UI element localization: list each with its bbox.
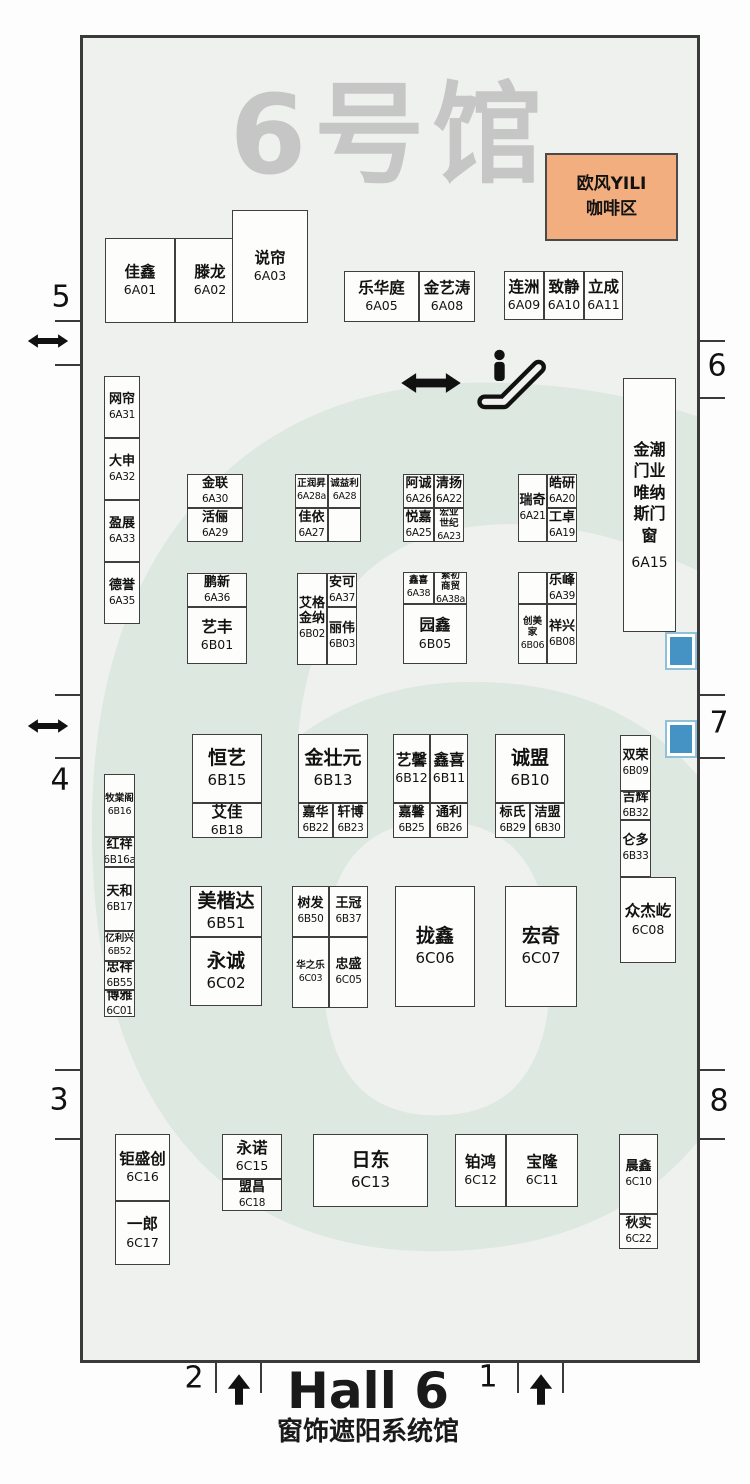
booth-id: 6B11: [433, 770, 465, 785]
booth-name: 活俪: [202, 511, 228, 526]
booth-name: 繁初 商贸: [441, 572, 460, 593]
booth-6B17: 天和6B17: [104, 867, 135, 931]
wall-tick: [562, 1363, 564, 1393]
booth-id: 6B55: [106, 977, 132, 990]
booth-name: 亿利兴: [105, 934, 134, 945]
booth-id: 6B16a: [104, 854, 135, 867]
wall-tick: [700, 757, 725, 759]
wall-tick: [517, 1363, 519, 1393]
booth-6B33: 仑多6B33: [620, 820, 651, 877]
booth-name: 众杰屹: [625, 903, 672, 921]
booth-id: 6A33: [109, 533, 135, 546]
booth-name: 天和: [106, 885, 132, 900]
booth-6A09: 连洲6A09: [504, 271, 544, 320]
wall-tick: [700, 340, 725, 342]
booth-name: 红祥: [106, 838, 132, 853]
booth-id: 6A39: [549, 590, 575, 603]
booth-id: 6C06: [415, 949, 454, 967]
booth-id: 6A30: [202, 493, 228, 506]
booth-id: 6A10: [548, 297, 580, 312]
booth-id: 6A02: [194, 282, 226, 297]
booth-6C10: 晨鑫6C10: [619, 1134, 658, 1214]
wall-tick: [55, 364, 80, 366]
booth-id: 6B13: [314, 771, 353, 789]
booth-id: 6B01: [201, 637, 233, 652]
booth-6C15: 永诺6C15: [222, 1134, 282, 1179]
booth-name: 滕龙: [194, 264, 225, 282]
booth-id: 6B05: [419, 636, 451, 651]
entrance-up-arrow-icon: [227, 1371, 251, 1408]
wall-number-7: 7: [709, 706, 728, 741]
booth-6A37: 安可6A37: [327, 573, 357, 607]
wall-tick: [55, 757, 80, 759]
booth-id: 6B22: [302, 822, 328, 835]
booth-name: 安可: [329, 576, 355, 591]
booth-6C05: 忠盛6C05: [329, 937, 368, 1008]
booth-6B16: 牧棠阁6B16: [104, 774, 135, 837]
booth-id: 6A03: [254, 268, 286, 283]
booth-6C03: 华之乐6C03: [292, 937, 329, 1008]
booth-id: 6B50: [297, 913, 323, 926]
booth-id: 6A25: [405, 527, 431, 540]
booth-name: 日东: [351, 1150, 389, 1172]
wall-tick: [215, 1363, 217, 1393]
booth-id: 6C17: [126, 1235, 159, 1250]
footer-hall-subtitle: 窗饰遮阳系统馆: [277, 1419, 459, 1445]
booth-6A32: 大申6A32: [104, 438, 140, 500]
booth-6A26: 阿诚6A26: [403, 474, 434, 508]
booth-id: 6C15: [236, 1158, 269, 1173]
booth-id: 6C02: [206, 974, 245, 992]
booth-id: 6B37: [335, 913, 361, 926]
booth-name: 金艺涛: [424, 280, 471, 298]
wall-tick: [55, 320, 80, 322]
booth-id: 6C07: [521, 949, 560, 967]
wall-tick: [260, 1363, 262, 1393]
booth-6B18: 艾佳6B18: [192, 803, 262, 838]
booth-id: 6B10: [511, 771, 550, 789]
booth-id: 6A11: [587, 297, 619, 312]
booth-6A38a: 繁初 商贸6A38a: [434, 572, 467, 604]
entrance-up-arrow-icon: [529, 1371, 553, 1408]
booth-name: 忠盛: [335, 958, 361, 973]
booth-name: 秋实: [625, 1217, 651, 1232]
booth-id: 6A38a: [436, 594, 465, 604]
booth-id: 6A29: [202, 527, 228, 540]
coffee-area-line2: 咖啡区: [586, 197, 637, 222]
booth-name: 祥兴: [549, 620, 575, 635]
booth-name: 鑫喜: [409, 576, 428, 587]
booth-6B06: 创美家6B06: [518, 604, 547, 664]
booth-name: 艾佳: [211, 804, 242, 822]
booth-6A30: 金联6A30: [187, 474, 243, 508]
booth-6A08: 金艺涛6A08: [419, 271, 475, 322]
wall-number-2: 2: [184, 1361, 203, 1396]
booth-id: 6B52: [108, 946, 131, 957]
wall-tick: [700, 1069, 725, 1071]
booth-id: 6A27: [298, 527, 324, 540]
booth-id: 6B06: [521, 640, 544, 651]
booth-id: 6C05: [335, 974, 361, 987]
booth-id: 6A36: [204, 592, 230, 605]
booth-6A33: 盈展6A33: [104, 500, 140, 562]
booth-name: 清扬: [436, 477, 462, 492]
booth-id: 6A05: [365, 298, 397, 313]
booth-6C01: 博雅6C01: [104, 990, 135, 1017]
booth-6C02: 永诚6C02: [190, 937, 262, 1006]
booth-id: 6A09: [508, 297, 540, 312]
booth-id: 6C16: [126, 1169, 159, 1184]
booth-6A10: 致静6A10: [544, 271, 584, 320]
booth-name: 宏奇: [522, 926, 560, 948]
booth-6B15: 恒艺6B15: [192, 734, 262, 803]
booth-id: 6C13: [351, 1173, 390, 1191]
booth-6B13: 金壮元6B13: [298, 734, 368, 803]
booth-name: 正润昇: [297, 479, 326, 490]
booth-id: 6C18: [239, 1197, 265, 1210]
booth-name: 连洲: [508, 279, 539, 297]
booth-6B22: 嘉华6B22: [298, 803, 333, 838]
booth-name: 阿诚: [405, 477, 431, 492]
wall-tick: [55, 694, 80, 696]
wall-tick: [700, 694, 725, 696]
booth-name: 乐峰: [549, 574, 575, 589]
booth-name: 永诚: [207, 951, 245, 973]
booth-name: 标氏: [499, 806, 525, 821]
booth-name: 园鑫: [419, 617, 450, 635]
booth-empty: [328, 508, 361, 542]
wall-number-6: 6: [707, 349, 726, 384]
booth-6C22: 秋实6C22: [619, 1214, 658, 1249]
coffee-area: 欧风YILI 咖啡区: [545, 153, 678, 241]
booth-id: 6C01: [106, 1005, 132, 1017]
booth-id: 6B26: [436, 822, 462, 835]
booth-6C12: 铂鸿6C12: [455, 1134, 506, 1207]
booth-id: 6C11: [526, 1172, 559, 1187]
booth-6A05: 乐华庭6A05: [344, 271, 419, 322]
booth-id: 6B15: [208, 771, 247, 789]
booth-6A19: 工卓6A19: [547, 508, 577, 542]
booth-name: 鑫喜: [433, 752, 464, 770]
booth-name: 嘉华: [302, 806, 328, 821]
booth-name: 金潮 门业 唯纳 斯门 窗: [633, 439, 665, 547]
booth-id: 6C03: [299, 973, 323, 984]
booth-6B09: 双荣6B09: [620, 735, 651, 791]
booth-6B11: 鑫喜6B11: [430, 734, 468, 803]
booth-id: 6B30: [534, 822, 560, 835]
booth-6C08: 众杰屹6C08: [620, 877, 676, 963]
booth-6B26: 通利6B26: [430, 803, 468, 838]
booth-name: 创美家: [519, 617, 546, 639]
booth-6A25: 悦嘉6A25: [403, 508, 434, 542]
booth-name: 双荣: [622, 749, 648, 764]
booth-name: 宏业 世纪: [439, 508, 458, 530]
booth-name: 立成: [588, 279, 619, 297]
booth-name: 说帘: [254, 250, 285, 268]
passage-double-arrow-icon: [400, 368, 462, 398]
booth-id: 6A08: [431, 298, 463, 313]
booth-id: 6B12: [395, 770, 427, 785]
booth-id: 6A21: [519, 510, 545, 523]
booth-6A38: 鑫喜6A38: [403, 572, 434, 604]
wall-tick: [55, 1138, 80, 1140]
booth-6C06: 拢鑫6C06: [395, 886, 475, 1007]
booth-id: 6B51: [207, 914, 246, 932]
booth-6B01: 艺丰6B01: [187, 607, 247, 664]
booth-6B32: 吉辉6B32: [620, 791, 651, 820]
booth-name: 佳鑫: [124, 264, 155, 282]
booth-name: 金联: [202, 477, 228, 492]
wall-tick: [700, 397, 725, 399]
wall-number-4: 4: [50, 763, 69, 798]
booth-id: 6B32: [622, 807, 648, 820]
booth-name: 博雅: [106, 990, 132, 1004]
wall-tick: [700, 1138, 725, 1140]
booth-empty: [518, 572, 547, 604]
booth-id: 6B17: [106, 901, 132, 914]
booth-6A35: 德誉6A35: [104, 562, 140, 624]
booth-name: 丽伟: [329, 622, 355, 637]
booth-id: 6C10: [625, 1176, 651, 1189]
booth-6A22: 清扬6A22: [434, 474, 464, 508]
booth-6A03: 说帘6A03: [232, 210, 308, 323]
booth-id: 6C12: [464, 1172, 497, 1187]
booth-6B08: 祥兴6B08: [547, 604, 577, 664]
booth-6A27: 佳依6A27: [295, 508, 328, 542]
booth-id: 6A23: [437, 531, 460, 542]
booth-6C11: 宝隆6C11: [506, 1134, 578, 1207]
booth-name: 德誉: [109, 579, 135, 594]
booth-6A21: 瑞奇6A21: [518, 474, 547, 542]
booth-id: 6C22: [625, 1233, 651, 1246]
booth-name: 大申: [109, 455, 135, 470]
booth-id: 6A32: [109, 471, 135, 484]
booth-id: 6B09: [622, 765, 648, 778]
booth-name: 铂鸿: [465, 1154, 496, 1172]
booth-6B10: 诚盟6B10: [495, 734, 565, 803]
booth-6B52: 亿利兴6B52: [104, 931, 135, 961]
booth-name: 艺丰: [201, 619, 232, 637]
booth-6B12: 艺馨6B12: [393, 734, 430, 803]
blue-marker: [665, 632, 697, 670]
booth-6A15: 金潮 门业 唯纳 斯门 窗6A15: [623, 378, 676, 632]
booth-6B55: 忠祥6B55: [104, 961, 135, 990]
booth-6A23: 宏业 世纪6A23: [434, 508, 464, 542]
booth-name: 致静: [548, 279, 579, 297]
booth-6B29: 标氏6B29: [495, 803, 530, 838]
booth-name: 轩博: [337, 806, 363, 821]
passage-double-arrow-icon: [27, 712, 69, 740]
blue-marker: [665, 720, 697, 758]
booth-name: 诚盟: [511, 748, 549, 770]
wall-number-3: 3: [49, 1083, 68, 1118]
booth-id: 6A28a: [297, 491, 326, 502]
booth-name: 乐华庭: [358, 280, 405, 298]
booth-6B37: 王冠6B37: [329, 886, 368, 937]
booth-6B25: 嘉馨6B25: [393, 803, 430, 838]
coffee-area-line1: 欧风YILI: [577, 172, 647, 197]
booth-6C18: 盟昌6C18: [222, 1179, 282, 1211]
booth-name: 佳依: [298, 511, 324, 526]
booth-id: 6A38: [407, 588, 430, 599]
booth-6A11: 立成6A11: [584, 271, 623, 320]
booth-name: 永诺: [236, 1140, 267, 1158]
booth-name: 恒艺: [208, 748, 246, 770]
booth-id: 6B03: [329, 638, 355, 651]
booth-name: 洁盟: [534, 806, 560, 821]
booth-name: 吉辉: [622, 791, 648, 806]
booth-name: 诚益利: [330, 479, 359, 490]
booth-6B16a: 红祥6B16a: [104, 837, 135, 867]
booth-name: 通利: [436, 806, 462, 821]
booth-name: 钜盛创: [119, 1151, 166, 1169]
booth-6C16: 钜盛创6C16: [115, 1134, 170, 1201]
booth-id: 6A26: [405, 493, 431, 506]
booth-id: 6B23: [337, 822, 363, 835]
booth-id: 6A20: [549, 493, 575, 506]
booth-6A01: 佳鑫6A01: [105, 238, 175, 323]
booth-6B30: 洁盟6B30: [530, 803, 565, 838]
booth-name: 牧棠阁: [105, 794, 134, 805]
exhibition-floor-plan: 6号馆 6 欧风YILI 咖啡区 佳鑫6A01滕龙6A02说帘6A03乐华庭6A…: [0, 0, 750, 1484]
booth-name: 王冠: [335, 897, 361, 912]
passage-double-arrow-icon: [27, 327, 69, 355]
booth-name: 晨鑫: [625, 1160, 651, 1175]
booth-6A36: 鹏新6A36: [187, 573, 247, 607]
booth-name: 艾格 金纳: [299, 597, 325, 627]
booth-6B51: 美楷达6B51: [190, 886, 262, 937]
booth-name: 树发: [297, 897, 323, 912]
booth-name: 一郎: [127, 1216, 158, 1234]
booth-name: 工卓: [549, 511, 575, 526]
booth-6C07: 宏奇6C07: [505, 886, 577, 1007]
booth-id: 6A01: [124, 282, 156, 297]
booth-id: 6A22: [436, 493, 462, 506]
booth-6A28: 诚益利6A28: [328, 474, 361, 508]
booth-6A29: 活俪6A29: [187, 508, 243, 542]
booth-name: 盈展: [109, 517, 135, 532]
booth-name: 金壮元: [304, 748, 361, 770]
booth-id: 6A19: [549, 527, 575, 540]
booth-name: 华之乐: [296, 961, 325, 972]
wall-tick: [55, 1069, 80, 1071]
booth-name: 皓研: [549, 477, 575, 492]
booth-name: 忠祥: [106, 961, 132, 976]
booth-6A31: 网帘6A31: [104, 376, 140, 438]
booth-6B23: 轩博6B23: [333, 803, 368, 838]
booth-name: 盟昌: [239, 1181, 265, 1196]
booth-id: 6B16: [108, 806, 131, 817]
booth-name: 仑多: [622, 834, 648, 849]
booth-id: 6C08: [632, 922, 665, 937]
escalator-icon: [472, 348, 560, 414]
booth-id: 6A15: [631, 555, 667, 572]
booth-id: 6A28: [333, 491, 356, 502]
booth-6B02: 艾格 金纳6B02: [297, 573, 327, 665]
booth-6B03: 丽伟6B03: [327, 607, 357, 665]
booth-name: 美楷达: [197, 891, 254, 913]
booth-id: 6B18: [211, 822, 243, 837]
booth-id: 6A31: [109, 409, 135, 422]
booth-id: 6B33: [622, 850, 648, 863]
booth-name: 鹏新: [204, 576, 230, 591]
booth-id: 6A35: [109, 595, 135, 608]
wall-number-8: 8: [709, 1084, 728, 1119]
booth-id: 6B25: [398, 822, 424, 835]
booth-name: 悦嘉: [405, 511, 431, 526]
booth-name: 瑞奇: [519, 494, 545, 509]
booth-6C17: 一郎6C17: [115, 1201, 170, 1265]
footer-hall-title: Hall 6: [287, 1366, 449, 1416]
booth-id: 6B08: [549, 636, 575, 649]
booth-6A39: 乐峰6A39: [547, 572, 577, 604]
wall-number-5: 5: [51, 280, 70, 315]
booth-6A20: 皓研6A20: [547, 474, 577, 508]
booth-6C13: 日东6C13: [313, 1134, 428, 1207]
booth-name: 宝隆: [526, 1154, 557, 1172]
booth-6B50: 树发6B50: [292, 886, 329, 937]
wall-number-1: 1: [478, 1360, 497, 1395]
booth-6B05: 园鑫6B05: [403, 604, 467, 664]
booth-name: 网帘: [109, 393, 135, 408]
booth-id: 6A37: [329, 592, 355, 605]
booth-name: 艺馨: [396, 752, 427, 770]
booth-6A28a: 正润昇6A28a: [295, 474, 328, 508]
booth-id: 6B29: [499, 822, 525, 835]
booth-name: 嘉馨: [398, 806, 424, 821]
booth-name: 拢鑫: [416, 926, 454, 948]
booth-id: 6B02: [299, 628, 325, 641]
